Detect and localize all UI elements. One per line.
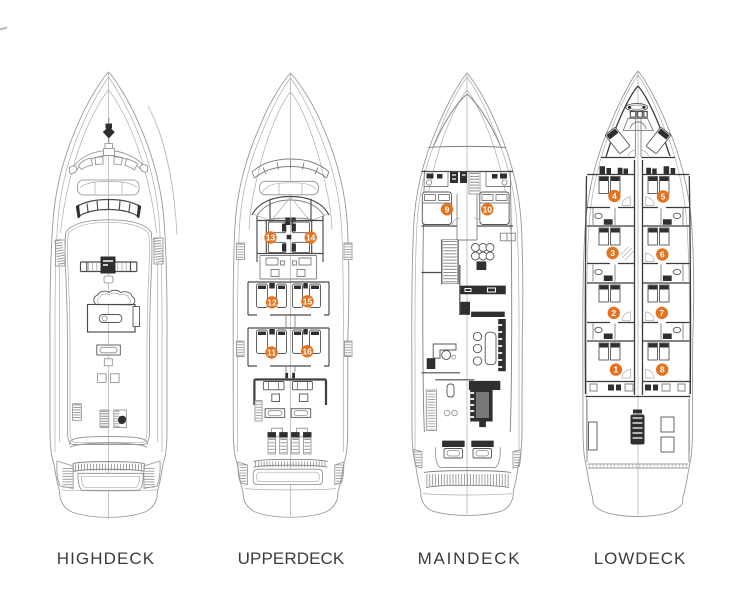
svg-text:4: 4 xyxy=(612,191,617,201)
svg-text:UPPERDECK: UPPERDECK xyxy=(238,549,345,568)
svg-text:1: 1 xyxy=(614,365,619,375)
svg-text:14: 14 xyxy=(306,233,316,243)
svg-text:MAINDECK: MAINDECK xyxy=(418,549,522,568)
svg-text:11: 11 xyxy=(267,348,276,358)
svg-text:5: 5 xyxy=(661,192,666,202)
svg-text:6: 6 xyxy=(660,250,665,260)
svg-text:12: 12 xyxy=(267,297,277,307)
svg-text:13: 13 xyxy=(266,233,276,243)
svg-text:LOWDECK: LOWDECK xyxy=(594,549,687,568)
svg-text:16: 16 xyxy=(302,346,312,356)
svg-text:7: 7 xyxy=(659,308,664,318)
svg-text:8: 8 xyxy=(660,365,665,375)
svg-text:10: 10 xyxy=(483,204,493,214)
svg-text:3: 3 xyxy=(610,248,615,258)
svg-text:HIGHDECK: HIGHDECK xyxy=(57,549,156,568)
svg-text:2: 2 xyxy=(611,308,616,318)
svg-text:9: 9 xyxy=(445,204,450,214)
svg-text:15: 15 xyxy=(303,296,313,306)
